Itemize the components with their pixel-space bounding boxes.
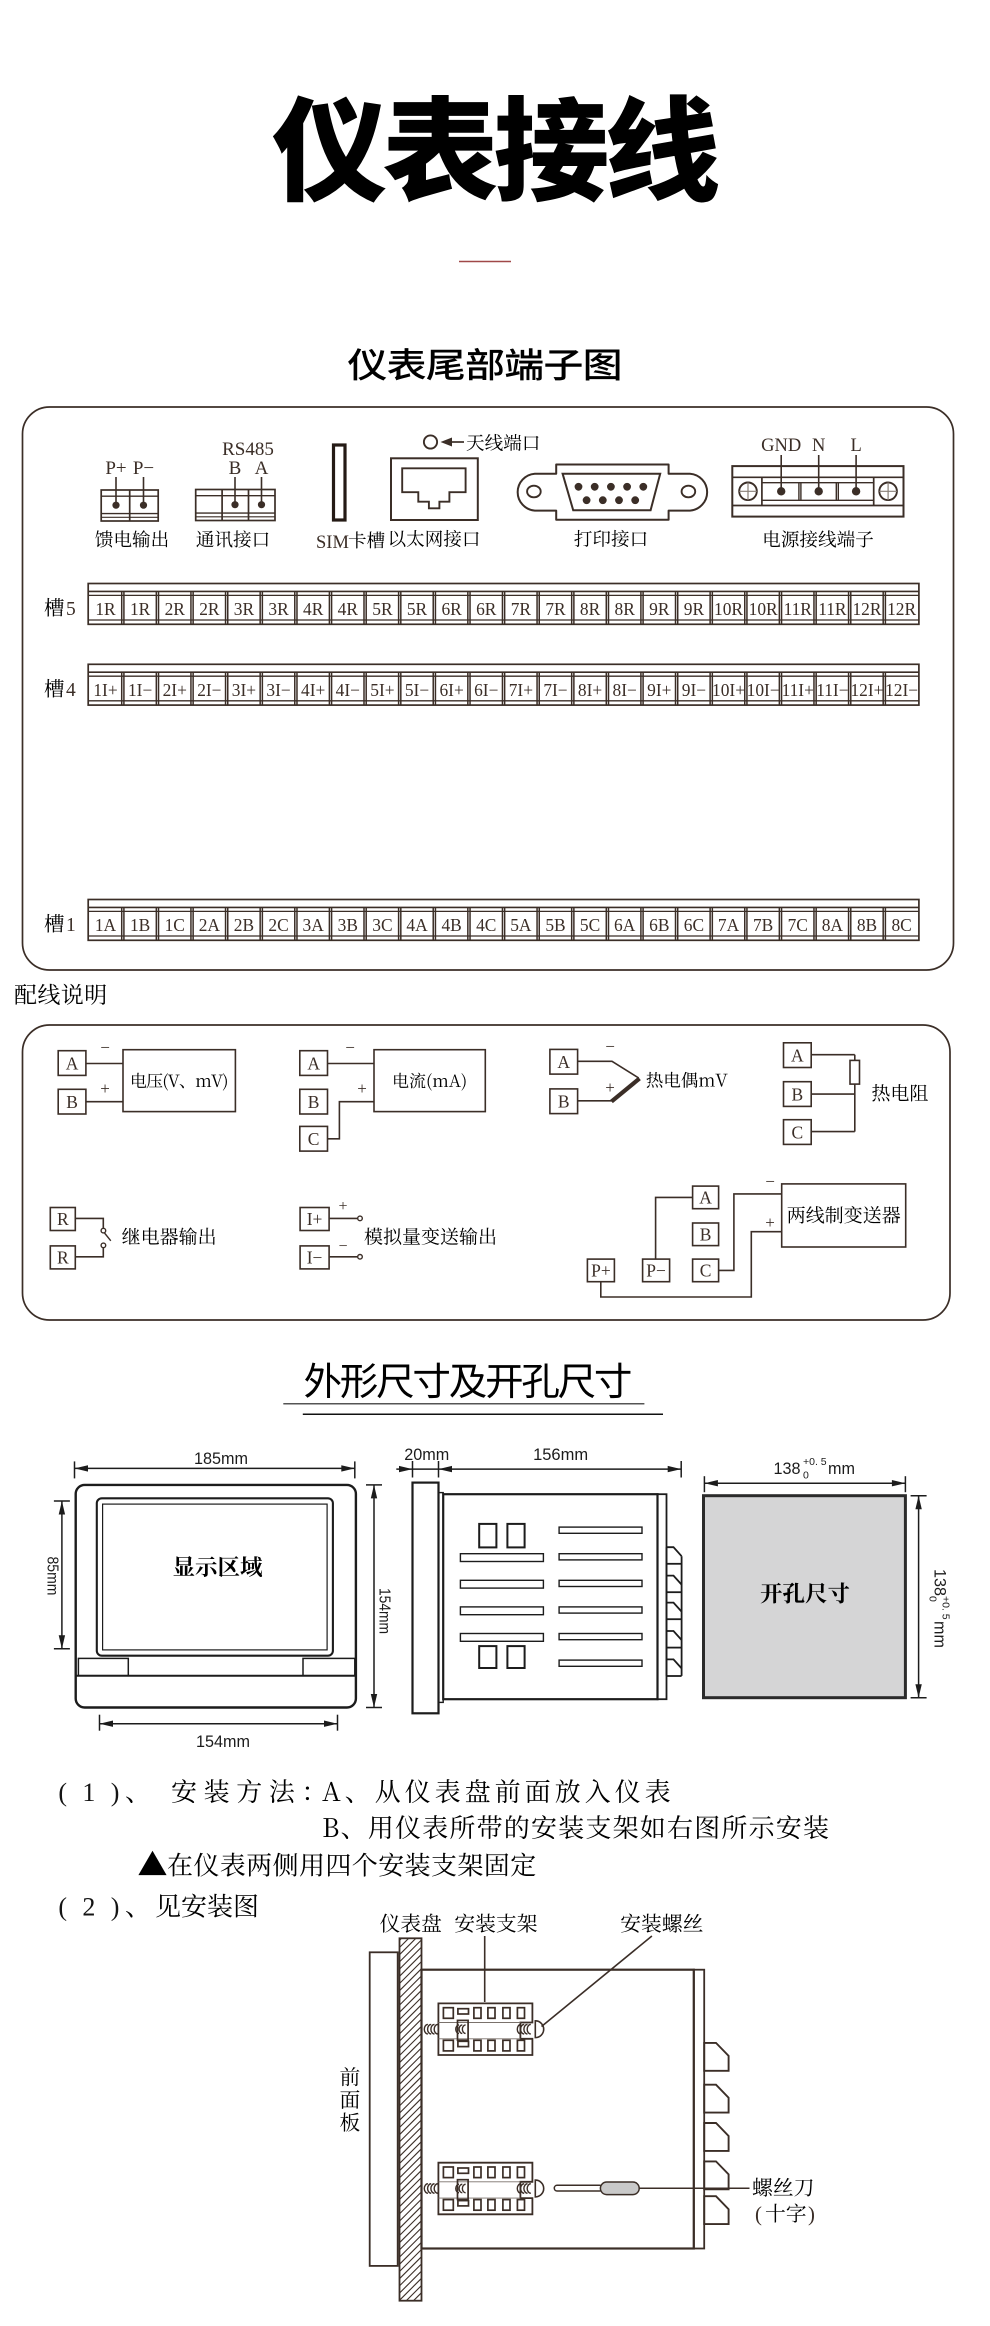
svg-text:−: − bbox=[100, 1038, 110, 1057]
svg-text:−: − bbox=[765, 1172, 775, 1191]
svg-text:+0. 5: +0. 5 bbox=[940, 1596, 952, 1620]
svg-text:P−: P− bbox=[133, 458, 154, 479]
svg-text:mm: mm bbox=[828, 1460, 855, 1478]
svg-text:3R: 3R bbox=[268, 599, 289, 619]
svg-text:4R: 4R bbox=[338, 599, 359, 619]
svg-text:−: − bbox=[345, 1038, 355, 1057]
svg-text:85mm: 85mm bbox=[44, 1557, 61, 1596]
svg-text:4C: 4C bbox=[476, 915, 496, 935]
svg-text:GND: GND bbox=[761, 436, 801, 456]
svg-text:10I−: 10I− bbox=[747, 680, 780, 700]
svg-text:8I−: 8I− bbox=[613, 680, 637, 700]
svg-text:6C: 6C bbox=[684, 915, 704, 935]
svg-text:B: B bbox=[792, 1084, 804, 1104]
svg-text:5: 5 bbox=[66, 599, 76, 620]
svg-text:3I−: 3I− bbox=[266, 680, 290, 700]
svg-text:2R: 2R bbox=[199, 599, 220, 619]
svg-text:1R: 1R bbox=[130, 599, 151, 619]
svg-text:10R: 10R bbox=[749, 599, 778, 619]
svg-text:7B: 7B bbox=[753, 915, 773, 935]
svg-text:12R: 12R bbox=[852, 599, 881, 619]
svg-text:5C: 5C bbox=[580, 915, 600, 935]
svg-text:10R: 10R bbox=[714, 599, 743, 619]
svg-text:I+: I+ bbox=[307, 1209, 323, 1229]
svg-text:1: 1 bbox=[66, 915, 76, 936]
svg-text:3I+: 3I+ bbox=[232, 680, 256, 700]
svg-text:mm: mm bbox=[931, 1621, 949, 1648]
svg-text:138: 138 bbox=[773, 1460, 800, 1478]
svg-text:11I−: 11I− bbox=[816, 680, 848, 700]
svg-text:SIM: SIM bbox=[316, 533, 349, 553]
svg-text:B: B bbox=[229, 458, 242, 479]
svg-text:1C: 1C bbox=[165, 915, 185, 935]
svg-text:+0. 5: +0. 5 bbox=[803, 1456, 827, 1468]
svg-text:R: R bbox=[57, 1209, 69, 1229]
svg-text:P+: P+ bbox=[105, 458, 126, 479]
svg-text:8B: 8B bbox=[857, 915, 877, 935]
svg-text:6I+: 6I+ bbox=[439, 680, 463, 700]
svg-text:8I+: 8I+ bbox=[578, 680, 602, 700]
svg-text:138: 138 bbox=[931, 1569, 949, 1596]
svg-text:154mm: 154mm bbox=[196, 1733, 250, 1751]
svg-text:2B: 2B bbox=[234, 915, 254, 935]
svg-text:8R: 8R bbox=[615, 599, 636, 619]
svg-text:A: A bbox=[66, 1053, 79, 1073]
svg-text:1R: 1R bbox=[95, 599, 116, 619]
svg-text:1I+: 1I+ bbox=[93, 680, 117, 700]
svg-text:1B: 1B bbox=[130, 915, 150, 935]
svg-text:2I−: 2I− bbox=[197, 680, 221, 700]
svg-text:5A: 5A bbox=[510, 915, 532, 935]
svg-text:4B: 4B bbox=[441, 915, 461, 935]
svg-text:−: − bbox=[338, 1238, 347, 1255]
svg-text:+: + bbox=[338, 1198, 347, 1215]
svg-text:(: ( bbox=[755, 2203, 762, 2226]
svg-text:8A: 8A bbox=[822, 915, 844, 935]
svg-text:7I−: 7I− bbox=[543, 680, 567, 700]
svg-text:(2): (2) bbox=[58, 1893, 119, 1922]
svg-text:9I−: 9I− bbox=[682, 680, 706, 700]
svg-text:5R: 5R bbox=[407, 599, 428, 619]
svg-text:A: A bbox=[307, 1053, 320, 1073]
svg-text:(1): (1) bbox=[58, 1778, 119, 1807]
svg-text:1I−: 1I− bbox=[128, 680, 152, 700]
svg-text:154mm: 154mm bbox=[376, 1588, 393, 1634]
svg-text:5I−: 5I− bbox=[405, 680, 429, 700]
svg-text:4I−: 4I− bbox=[336, 680, 360, 700]
svg-text:2R: 2R bbox=[165, 599, 186, 619]
svg-text:): ) bbox=[808, 2203, 815, 2226]
svg-text:+: + bbox=[605, 1078, 615, 1097]
svg-text:6B: 6B bbox=[649, 915, 669, 935]
svg-text:185mm: 185mm bbox=[194, 1450, 248, 1468]
svg-text:R: R bbox=[57, 1248, 69, 1268]
svg-text:2A: 2A bbox=[199, 915, 221, 935]
svg-text:11R: 11R bbox=[818, 599, 847, 619]
svg-text:6R: 6R bbox=[441, 599, 462, 619]
svg-text:P−: P− bbox=[646, 1261, 666, 1281]
svg-text:B: B bbox=[558, 1091, 570, 1111]
svg-text:6I−: 6I− bbox=[474, 680, 498, 700]
svg-text:12R: 12R bbox=[887, 599, 916, 619]
svg-text:+: + bbox=[765, 1213, 775, 1232]
svg-text:3C: 3C bbox=[372, 915, 392, 935]
svg-text:11R: 11R bbox=[784, 599, 813, 619]
svg-text:12I−: 12I− bbox=[885, 680, 918, 700]
svg-text:20mm: 20mm bbox=[404, 1446, 449, 1464]
svg-text:0: 0 bbox=[927, 1596, 939, 1602]
svg-text:4A: 4A bbox=[406, 915, 428, 935]
svg-text:7I+: 7I+ bbox=[509, 680, 533, 700]
svg-text:10I+: 10I+ bbox=[712, 680, 745, 700]
svg-text:8C: 8C bbox=[891, 915, 911, 935]
svg-text:9R: 9R bbox=[649, 599, 670, 619]
svg-text:2I+: 2I+ bbox=[163, 680, 187, 700]
svg-text:6R: 6R bbox=[476, 599, 497, 619]
svg-text:B: B bbox=[308, 1092, 320, 1112]
svg-text:3B: 3B bbox=[338, 915, 358, 935]
svg-text:7R: 7R bbox=[511, 599, 532, 619]
svg-text:3A: 3A bbox=[303, 915, 325, 935]
svg-text:C: C bbox=[792, 1122, 804, 1142]
svg-text:5B: 5B bbox=[545, 915, 565, 935]
svg-text:A: A bbox=[255, 458, 269, 479]
svg-text:C: C bbox=[700, 1261, 712, 1281]
svg-text:−: − bbox=[605, 1037, 615, 1056]
svg-text:7C: 7C bbox=[788, 915, 808, 935]
svg-text:156mm: 156mm bbox=[533, 1446, 588, 1464]
svg-text:7A: 7A bbox=[718, 915, 740, 935]
svg-text:9I+: 9I+ bbox=[647, 680, 671, 700]
svg-text:11I+: 11I+ bbox=[782, 680, 814, 700]
svg-text:2C: 2C bbox=[268, 915, 288, 935]
svg-text:4R: 4R bbox=[303, 599, 324, 619]
svg-text:7R: 7R bbox=[545, 599, 566, 619]
svg-text:5I+: 5I+ bbox=[370, 680, 394, 700]
svg-text:A: A bbox=[791, 1045, 804, 1065]
svg-text:B: B bbox=[66, 1092, 78, 1112]
svg-text:L: L bbox=[850, 436, 861, 456]
svg-text:A: A bbox=[557, 1052, 570, 1072]
svg-text:C: C bbox=[308, 1129, 320, 1149]
svg-text:5R: 5R bbox=[372, 599, 393, 619]
svg-text:1A: 1A bbox=[95, 915, 117, 935]
svg-text:0: 0 bbox=[803, 1470, 809, 1482]
svg-text:B: B bbox=[700, 1225, 712, 1245]
svg-text:8R: 8R bbox=[580, 599, 601, 619]
svg-text:4I+: 4I+ bbox=[301, 680, 325, 700]
svg-text:+: + bbox=[100, 1079, 110, 1098]
svg-text:N: N bbox=[812, 436, 825, 456]
svg-text:A: A bbox=[699, 1188, 712, 1208]
svg-text:12I+: 12I+ bbox=[850, 680, 883, 700]
svg-text:+: + bbox=[357, 1079, 367, 1098]
svg-text:3R: 3R bbox=[234, 599, 255, 619]
svg-text:9R: 9R bbox=[684, 599, 705, 619]
svg-text:4: 4 bbox=[66, 680, 76, 701]
svg-text:RS485: RS485 bbox=[222, 439, 274, 460]
svg-text:P+: P+ bbox=[591, 1261, 611, 1281]
svg-text:6A: 6A bbox=[614, 915, 636, 935]
svg-text:I−: I− bbox=[307, 1248, 323, 1268]
